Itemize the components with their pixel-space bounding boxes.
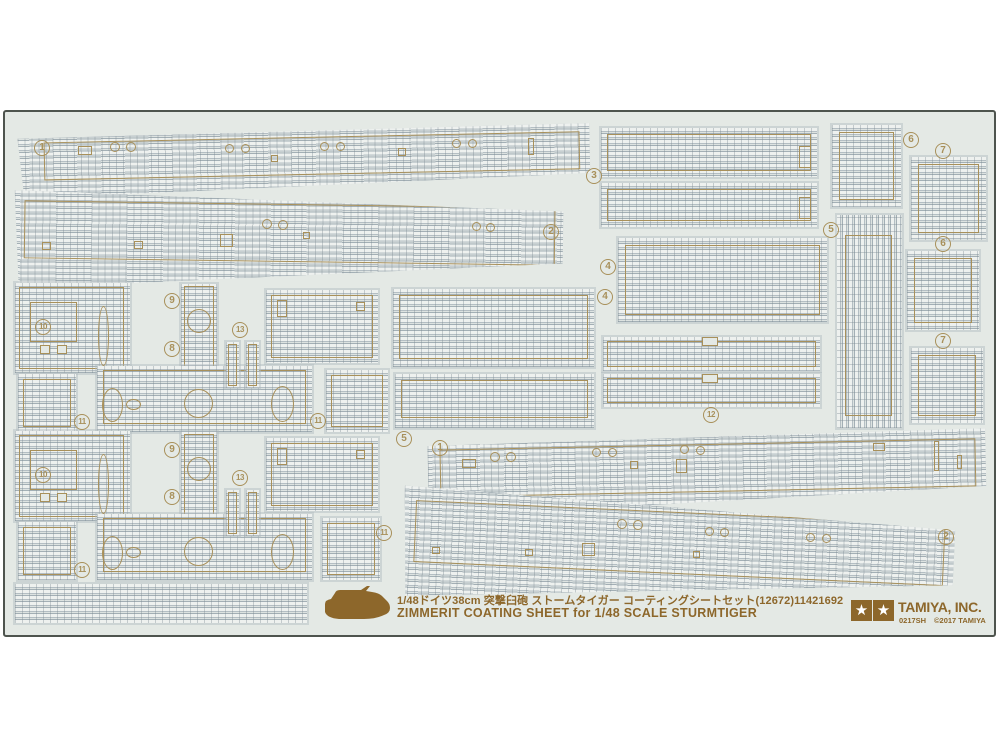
- panel-detail-outline: [693, 551, 700, 558]
- product-photo: 12344556677891011111213128910111113 1/48…: [0, 0, 1000, 750]
- part-number-badge: 9: [164, 293, 180, 309]
- panel-detail-outline: [277, 448, 287, 465]
- panel-detail-outline: [799, 146, 811, 168]
- cut-outline: [607, 189, 811, 221]
- cut-outline: [228, 492, 237, 534]
- panel-detail-outline: [98, 306, 109, 366]
- panel-detail-outline: [271, 534, 294, 570]
- brand-name: TAMIYA, INC.: [898, 599, 982, 615]
- panel-detail-outline: [102, 536, 123, 570]
- panel-detail-outline: [592, 448, 601, 457]
- cut-notch: [57, 493, 67, 502]
- cut-outline: [327, 523, 375, 575]
- part-piece: [832, 125, 901, 207]
- panel-detail-outline: [806, 533, 815, 542]
- part-piece: [18, 522, 76, 580]
- part-number-badge: 10: [35, 467, 51, 483]
- cut-notch: [40, 493, 50, 502]
- cut-notch: [57, 345, 67, 354]
- panel-detail-outline: [78, 146, 92, 155]
- cut-notch: [702, 374, 718, 383]
- part-piece: [226, 490, 239, 536]
- panel-detail-outline: [126, 547, 141, 558]
- part-number-badge: 3: [586, 168, 602, 184]
- panel-detail-outline: [187, 309, 211, 333]
- cut-outline: [248, 344, 257, 386]
- cut-outline: [918, 355, 976, 416]
- panel-detail-outline: [271, 386, 294, 422]
- copyright: ©2017 TAMIYA: [934, 616, 986, 625]
- part-number-badge: 6: [935, 236, 951, 252]
- part-number-badge: 12: [703, 407, 719, 423]
- tamiya-star-icon: ★: [851, 600, 872, 621]
- part-number-badge: 9: [164, 442, 180, 458]
- part-piece: [246, 342, 259, 388]
- part-number-badge: 11: [74, 414, 90, 430]
- panel-detail-outline: [934, 441, 939, 471]
- panel-detail-outline: [184, 389, 213, 418]
- panel-detail-outline: [462, 459, 476, 468]
- part-number-badge: 5: [823, 222, 839, 238]
- panel-detail-outline: [336, 142, 345, 151]
- part-number-badge: 4: [597, 289, 613, 305]
- panel-detail-outline: [525, 549, 533, 556]
- part-number-badge: 7: [935, 333, 951, 349]
- panel-detail-outline: [241, 144, 250, 153]
- panel-detail-outline: [608, 448, 617, 457]
- cut-outline: [625, 245, 820, 315]
- part-piece: [246, 490, 259, 536]
- panel-detail-outline: [696, 446, 705, 455]
- part-number-badge: 2: [938, 529, 954, 545]
- part-number-badge: 11: [310, 413, 326, 429]
- panel-detail-outline: [126, 399, 141, 410]
- part-piece: [15, 584, 307, 623]
- part-number-badge: 11: [376, 525, 392, 541]
- part-piece: [322, 518, 380, 580]
- part-number-badge: 8: [164, 489, 180, 505]
- panel-detail-outline: [262, 219, 272, 229]
- cut-outline: [439, 438, 976, 497]
- caption-english: ZIMMERIT COATING SHEET for 1/48 SCALE ST…: [397, 606, 757, 620]
- part-number-badge: 10: [35, 319, 51, 335]
- panel-detail-outline: [799, 197, 811, 219]
- panel-detail-outline: [42, 242, 51, 250]
- panel-detail-outline: [582, 543, 595, 556]
- panel-detail-outline: [356, 450, 365, 459]
- cut-outline: [23, 379, 71, 427]
- panel-detail-outline: [126, 142, 136, 152]
- cut-outline: [845, 235, 892, 416]
- panel-detail-outline: [452, 139, 461, 148]
- cut-outline: [401, 380, 588, 418]
- tamiya-star-icon: ★: [873, 600, 894, 621]
- cut-outline: [248, 492, 257, 534]
- part-piece: [601, 183, 817, 227]
- part-number-badge: 8: [164, 341, 180, 357]
- part-number-badge: 13: [232, 322, 248, 338]
- part-piece: [326, 370, 388, 432]
- panel-detail-outline: [822, 534, 831, 543]
- part-piece: [601, 128, 817, 177]
- part-number-badge: 1: [34, 140, 50, 156]
- cut-outline: [839, 132, 894, 200]
- part-piece: [837, 215, 902, 428]
- panel-detail-outline: [720, 528, 729, 537]
- panel-detail-outline: [398, 148, 406, 156]
- cut-outline: [918, 164, 979, 233]
- part-piece: [911, 157, 986, 240]
- tank-silhouette-icon: [320, 585, 392, 623]
- part-number-badge: 4: [600, 259, 616, 275]
- part-piece: [618, 238, 827, 322]
- panel-detail-outline: [278, 220, 288, 230]
- panel-detail-outline: [356, 302, 365, 311]
- panel-detail-outline: [187, 457, 211, 481]
- panel-detail-outline: [432, 547, 440, 554]
- cut-outline: [23, 527, 71, 575]
- panel-detail-outline: [633, 520, 643, 530]
- panel-detail-outline: [320, 142, 329, 151]
- part-piece: [226, 342, 239, 388]
- cut-outline: [44, 131, 581, 180]
- panel-detail-outline: [630, 461, 638, 469]
- panel-detail-outline: [271, 155, 278, 162]
- panel-detail-outline: [873, 443, 885, 451]
- part-number-badge: 1: [432, 440, 448, 456]
- panel-detail-outline: [98, 454, 109, 514]
- part-piece: [18, 374, 76, 432]
- panel-detail-outline: [472, 222, 481, 231]
- cut-notch: [40, 345, 50, 354]
- cut-notch: [702, 337, 718, 346]
- panel-detail-outline: [490, 452, 500, 462]
- cut-outline: [228, 344, 237, 386]
- item-code: 0217SH: [899, 616, 926, 625]
- cut-outline: [607, 134, 811, 171]
- panel-detail-outline: [277, 300, 287, 317]
- panel-detail-outline: [134, 241, 143, 249]
- part-piece: [393, 289, 594, 367]
- panel-detail-outline: [528, 138, 534, 155]
- part-piece: [395, 374, 594, 428]
- panel-detail-outline: [617, 519, 627, 529]
- part-piece: [907, 251, 979, 330]
- panel-detail-outline: [676, 459, 687, 473]
- part-number-badge: 5: [396, 431, 412, 447]
- part-piece: [911, 348, 983, 423]
- panel-detail-outline: [680, 445, 689, 454]
- part-number-badge: 6: [903, 132, 919, 148]
- panel-detail-outline: [486, 223, 495, 232]
- panel-detail-outline: [220, 234, 233, 247]
- part-number-badge: 2: [543, 224, 559, 240]
- panel-detail-outline: [957, 455, 962, 469]
- cut-outline: [914, 258, 972, 323]
- panel-detail-outline: [705, 527, 714, 536]
- cut-outline: [399, 295, 588, 359]
- cut-outline: [24, 200, 556, 265]
- panel-detail-outline: [184, 537, 213, 566]
- panel-detail-outline: [506, 452, 516, 462]
- part-number-badge: 11: [74, 562, 90, 578]
- panel-detail-outline: [303, 232, 310, 239]
- panel-detail-outline: [110, 142, 120, 152]
- panel-detail-outline: [225, 144, 234, 153]
- panel-detail-outline: [468, 139, 477, 148]
- part-number-badge: 13: [232, 470, 248, 486]
- cut-outline: [331, 375, 383, 427]
- part-number-badge: 7: [935, 143, 951, 159]
- panel-detail-outline: [102, 388, 123, 422]
